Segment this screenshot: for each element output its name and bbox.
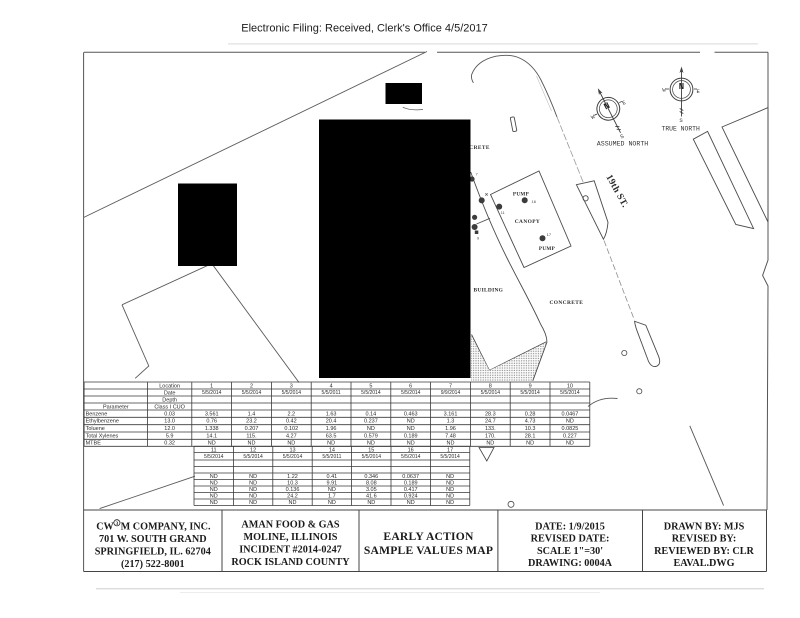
svg-text:5/5/2014: 5/5/2014 bbox=[401, 454, 421, 460]
svg-text:ND: ND bbox=[566, 419, 574, 425]
svg-text:0.463: 0.463 bbox=[404, 411, 418, 417]
svg-text:REVISED DATE:: REVISED DATE: bbox=[531, 534, 610, 545]
svg-text:Date: Date bbox=[164, 390, 176, 396]
svg-text:11: 11 bbox=[501, 211, 505, 215]
svg-text:9: 9 bbox=[477, 237, 479, 241]
svg-text:4: 4 bbox=[330, 383, 333, 389]
svg-text:170.: 170. bbox=[485, 433, 496, 439]
svg-text:5/5/2014: 5/5/2014 bbox=[401, 390, 421, 396]
svg-text:5/5/2011: 5/5/2011 bbox=[322, 390, 341, 396]
svg-text:ASSUMED NORTH: ASSUMED NORTH bbox=[597, 140, 648, 147]
svg-text:12: 12 bbox=[250, 448, 256, 454]
svg-text:ND: ND bbox=[210, 487, 218, 493]
svg-text:5/5/2014: 5/5/2014 bbox=[202, 390, 222, 396]
svg-text:ND: ND bbox=[367, 441, 375, 447]
svg-text:ND: ND bbox=[407, 441, 415, 447]
svg-text:DRAWING: 0004A: DRAWING: 0004A bbox=[528, 558, 613, 569]
svg-text:ND: ND bbox=[446, 481, 454, 487]
svg-text:Depth: Depth bbox=[162, 397, 177, 403]
svg-text:ND: ND bbox=[327, 441, 335, 447]
svg-text:5: 5 bbox=[369, 383, 372, 389]
svg-text:12.0: 12.0 bbox=[164, 426, 175, 432]
svg-text:0.189: 0.189 bbox=[404, 481, 418, 487]
svg-text:CANOPY: CANOPY bbox=[515, 219, 540, 225]
svg-text:3.05: 3.05 bbox=[366, 487, 377, 493]
svg-text:ND: ND bbox=[249, 500, 257, 506]
svg-text:15: 15 bbox=[368, 448, 374, 454]
svg-text:ROCK ISLAND COUNTY: ROCK ISLAND COUNTY bbox=[231, 557, 350, 568]
svg-text:ND: ND bbox=[210, 481, 218, 487]
svg-text:14.1: 14.1 bbox=[206, 433, 217, 439]
svg-text:ND: ND bbox=[446, 474, 454, 480]
svg-text:9/9/2014: 9/9/2014 bbox=[441, 390, 461, 396]
svg-text:1.22: 1.22 bbox=[287, 474, 298, 480]
svg-text:ND: ND bbox=[208, 441, 216, 447]
svg-text:17: 17 bbox=[547, 232, 552, 237]
svg-text:14: 14 bbox=[329, 448, 335, 454]
svg-text:5/5/2011: 5/5/2011 bbox=[322, 454, 341, 460]
svg-text:ND: ND bbox=[526, 441, 534, 447]
svg-text:Toluene: Toluene bbox=[86, 426, 105, 432]
svg-text:17: 17 bbox=[447, 448, 453, 454]
svg-text:8: 8 bbox=[489, 383, 492, 389]
svg-text:13.0: 13.0 bbox=[164, 419, 175, 425]
svg-text:REVISED BY:: REVISED BY: bbox=[672, 534, 736, 545]
svg-text:1.338: 1.338 bbox=[205, 426, 219, 432]
svg-text:ND: ND bbox=[328, 487, 336, 493]
svg-text:0.28: 0.28 bbox=[525, 411, 536, 417]
svg-text:ND: ND bbox=[407, 426, 415, 432]
svg-text:5/5/2014: 5/5/2014 bbox=[361, 390, 381, 396]
svg-text:0.102: 0.102 bbox=[284, 426, 298, 432]
svg-text:24.2: 24.2 bbox=[287, 494, 298, 500]
svg-text:REVIEWED BY: CLR: REVIEWED BY: CLR bbox=[654, 546, 754, 557]
svg-text:0.346: 0.346 bbox=[364, 474, 378, 480]
svg-text:1.7: 1.7 bbox=[328, 494, 336, 500]
svg-text:20.4: 20.4 bbox=[326, 419, 337, 425]
svg-text:5/5/2014: 5/5/2014 bbox=[481, 390, 501, 396]
svg-text:23.2: 23.2 bbox=[246, 419, 257, 425]
svg-text:0.136: 0.136 bbox=[286, 487, 300, 493]
svg-text:3.161: 3.161 bbox=[444, 411, 458, 417]
svg-text:10.3: 10.3 bbox=[287, 481, 298, 487]
svg-text:115.: 115. bbox=[246, 433, 257, 439]
svg-text:0.14: 0.14 bbox=[366, 411, 377, 417]
svg-text:0.207: 0.207 bbox=[245, 426, 259, 432]
svg-text:ND: ND bbox=[566, 441, 574, 447]
svg-text:0.41: 0.41 bbox=[327, 474, 338, 480]
svg-text:10: 10 bbox=[567, 383, 573, 389]
svg-text:0.924: 0.924 bbox=[404, 494, 418, 500]
svg-text:5.9: 5.9 bbox=[166, 433, 174, 439]
svg-text:BUILDING: BUILDING bbox=[474, 288, 504, 294]
svg-text:TRUE NORTH: TRUE NORTH bbox=[662, 125, 701, 132]
svg-text:Location: Location bbox=[159, 383, 180, 389]
svg-text:5/5/2014: 5/5/2014 bbox=[282, 390, 302, 396]
svg-text:5/5/2014: 5/5/2014 bbox=[204, 454, 224, 460]
svg-text:ND: ND bbox=[249, 481, 257, 487]
svg-text:5/5/2014: 5/5/2014 bbox=[520, 390, 540, 396]
svg-text:SCALE 1"=30': SCALE 1"=30' bbox=[537, 546, 603, 557]
svg-text:CRETE: CRETE bbox=[469, 145, 490, 151]
svg-text:3: 3 bbox=[116, 521, 119, 527]
svg-text:N: N bbox=[679, 82, 684, 92]
svg-text:63.5: 63.5 bbox=[326, 433, 337, 439]
svg-text:ND: ND bbox=[249, 487, 257, 493]
svg-text:5/5/2014: 5/5/2014 bbox=[560, 390, 580, 396]
svg-text:1.3: 1.3 bbox=[447, 419, 455, 425]
svg-text:16: 16 bbox=[408, 448, 414, 454]
svg-text:0.417: 0.417 bbox=[404, 487, 418, 493]
svg-text:ND: ND bbox=[367, 500, 375, 506]
svg-text:Benzene: Benzene bbox=[86, 411, 108, 417]
svg-text:3: 3 bbox=[290, 383, 293, 389]
svg-text:ND: ND bbox=[446, 500, 454, 506]
svg-text:0.579: 0.579 bbox=[364, 433, 378, 439]
svg-text:Parameter: Parameter bbox=[103, 404, 129, 410]
svg-text:0.237: 0.237 bbox=[364, 419, 378, 425]
svg-text:ND: ND bbox=[249, 494, 257, 500]
svg-text:0.03: 0.03 bbox=[164, 411, 175, 417]
svg-text:24.7: 24.7 bbox=[485, 419, 496, 425]
svg-text:13: 13 bbox=[289, 448, 295, 454]
svg-text:ND: ND bbox=[210, 494, 218, 500]
svg-text:0.0637: 0.0637 bbox=[402, 474, 419, 480]
svg-text:5/5/2014: 5/5/2014 bbox=[440, 454, 460, 460]
svg-text:5/5/2014: 5/5/2014 bbox=[283, 454, 303, 460]
svg-text:0.0825: 0.0825 bbox=[561, 426, 578, 432]
svg-text:CONCRETE: CONCRETE bbox=[550, 300, 584, 306]
svg-text:MTBE: MTBE bbox=[86, 441, 102, 447]
svg-text:3.561: 3.561 bbox=[205, 411, 219, 417]
svg-text:1.96: 1.96 bbox=[326, 426, 337, 432]
svg-text:ND: ND bbox=[486, 441, 494, 447]
svg-text:SPRINGFIELD, IL. 62704: SPRINGFIELD, IL. 62704 bbox=[95, 547, 211, 558]
svg-text:ND: ND bbox=[287, 441, 295, 447]
svg-text:ND: ND bbox=[210, 474, 218, 480]
svg-text:PUMP: PUMP bbox=[513, 192, 530, 198]
svg-text:5/5/2014: 5/5/2014 bbox=[242, 390, 262, 396]
svg-text:Electronic Filing: Received, C: Electronic Filing: Received, Clerk's Off… bbox=[241, 22, 487, 34]
svg-text:1.96: 1.96 bbox=[445, 426, 456, 432]
svg-text:ND: ND bbox=[367, 426, 375, 432]
svg-text:ND: ND bbox=[248, 441, 256, 447]
svg-text:DRAWN BY: MJS: DRAWN BY: MJS bbox=[664, 521, 745, 532]
svg-text:1.63: 1.63 bbox=[326, 411, 337, 417]
svg-text:Ethylbenzene: Ethylbenzene bbox=[86, 419, 119, 425]
svg-text:ND: ND bbox=[289, 500, 297, 506]
svg-text:2: 2 bbox=[250, 383, 253, 389]
svg-text:ND: ND bbox=[407, 419, 415, 425]
svg-text:10.3: 10.3 bbox=[525, 426, 536, 432]
svg-text:11: 11 bbox=[211, 448, 217, 454]
svg-text:6: 6 bbox=[409, 383, 412, 389]
svg-text:1: 1 bbox=[210, 383, 213, 389]
svg-text:INCIDENT #2014-0247: INCIDENT #2014-0247 bbox=[239, 545, 342, 556]
svg-text:0.76: 0.76 bbox=[206, 419, 217, 425]
svg-text:AMAN FOOD & GAS: AMAN FOOD & GAS bbox=[241, 520, 340, 531]
svg-text:ND: ND bbox=[328, 500, 336, 506]
svg-text:8.08: 8.08 bbox=[366, 481, 377, 487]
svg-text:1.4: 1.4 bbox=[248, 411, 256, 417]
svg-text:5/5/2014: 5/5/2014 bbox=[362, 454, 382, 460]
svg-text:133.: 133. bbox=[485, 426, 496, 432]
svg-text:7: 7 bbox=[449, 383, 452, 389]
svg-text:7.48: 7.48 bbox=[445, 433, 456, 439]
svg-text:PUMP: PUMP bbox=[539, 246, 556, 252]
svg-text:CW: CW bbox=[96, 522, 114, 533]
svg-text:0.189: 0.189 bbox=[404, 433, 418, 439]
svg-text:0.227: 0.227 bbox=[563, 433, 577, 439]
svg-text:5/5/2014: 5/5/2014 bbox=[243, 454, 263, 460]
svg-text:41.6: 41.6 bbox=[366, 494, 377, 500]
svg-text:(217) 522-8001: (217) 522-8001 bbox=[121, 559, 185, 570]
svg-text:DATE: 1/9/2015: DATE: 1/9/2015 bbox=[535, 521, 605, 532]
svg-text:4.27: 4.27 bbox=[286, 433, 297, 439]
svg-text:4.73: 4.73 bbox=[525, 419, 536, 425]
svg-text:ND: ND bbox=[446, 487, 454, 493]
svg-text:EAVAL.DWG: EAVAL.DWG bbox=[673, 558, 734, 569]
svg-text:ND: ND bbox=[407, 500, 415, 506]
svg-text:ND: ND bbox=[446, 494, 454, 500]
svg-text:9.91: 9.91 bbox=[327, 481, 338, 487]
svg-text:28.1: 28.1 bbox=[525, 433, 536, 439]
svg-text:28.3: 28.3 bbox=[485, 411, 496, 417]
svg-text:Class I CUO: Class I CUO bbox=[154, 404, 185, 410]
svg-text:0.0467: 0.0467 bbox=[561, 411, 578, 417]
svg-text:EARLY ACTION: EARLY ACTION bbox=[383, 530, 474, 543]
svg-text:0.42: 0.42 bbox=[286, 419, 297, 425]
svg-text:2.2: 2.2 bbox=[287, 411, 295, 417]
svg-text:0.32: 0.32 bbox=[164, 441, 175, 447]
svg-text:701 W. SOUTH GRAND: 701 W. SOUTH GRAND bbox=[99, 534, 207, 545]
svg-text:SAMPLE VALUES MAP: SAMPLE VALUES MAP bbox=[364, 544, 493, 557]
svg-text:16: 16 bbox=[532, 199, 537, 204]
svg-text:ND: ND bbox=[447, 441, 455, 447]
svg-text:Total Xylenes: Total Xylenes bbox=[86, 433, 119, 439]
svg-text:7: 7 bbox=[476, 173, 478, 177]
svg-text:M COMPANY, INC.: M COMPANY, INC. bbox=[121, 522, 211, 533]
svg-text:ND: ND bbox=[210, 500, 218, 506]
svg-text:MOLINE, ILLINOIS: MOLINE, ILLINOIS bbox=[244, 532, 338, 543]
svg-text:9: 9 bbox=[529, 383, 532, 389]
svg-text:ND: ND bbox=[249, 474, 257, 480]
